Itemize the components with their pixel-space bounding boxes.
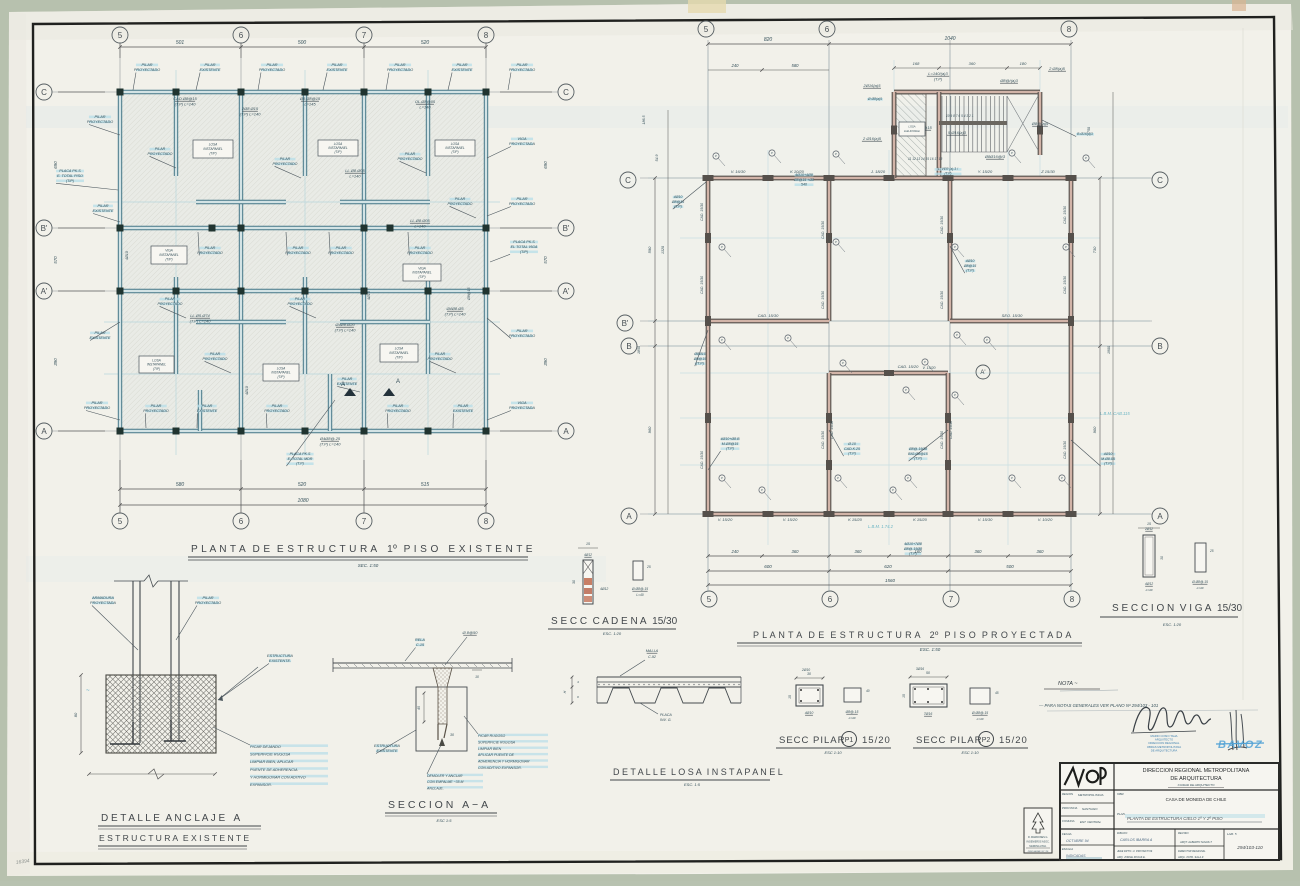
svg-text:APLICAR PUENTE DE: APLICAR PUENTE DE: [477, 753, 515, 757]
svg-text:620: 620: [884, 564, 892, 569]
svg-text:PILAR: PILAR: [455, 197, 466, 201]
svg-text:PROYECTADO: PROYECTADO: [509, 202, 535, 206]
svg-text:ESC. 1:20: ESC. 1:20: [603, 631, 622, 636]
svg-text:PROYECTADO: PROYECTADO: [385, 409, 411, 413]
svg-text:540: 540: [801, 183, 807, 187]
svg-text:INSTAPANEL: INSTAPANEL: [389, 351, 409, 355]
svg-text:PROYECTADO: PROYECTADO: [158, 302, 183, 306]
svg-text:CON ADITIVO EXPANSOR.: CON ADITIVO EXPANSOR.: [478, 766, 522, 770]
svg-text:PROYECTADO: PROYECTADO: [407, 251, 433, 255]
svg-text:690: 690: [53, 161, 58, 169]
svg-text:5: 5: [707, 595, 712, 604]
svg-text:(T.P): (T.P): [726, 447, 734, 451]
svg-text:Ø8@.15: Ø8@.15: [845, 710, 859, 714]
svg-text:15: 15: [902, 694, 906, 698]
svg-text:PROYECTADO: PROYECTADO: [428, 357, 453, 361]
svg-text:PILAR: PILAR: [203, 596, 214, 600]
svg-text:(TIP): (TIP): [66, 179, 75, 183]
svg-text:4Ø12: 4Ø12: [1145, 582, 1153, 586]
svg-text:EXISTENTE: EXISTENTE: [451, 68, 473, 72]
svg-text:PILAR: PILAR: [98, 204, 109, 208]
svg-text:2 Ø8(a)5: 2 Ø8(a)5: [1048, 66, 1066, 71]
svg-text:VIGA: VIGA: [165, 249, 173, 253]
svg-text:DEMOLER Y ANCLAR: DEMOLER Y ANCLAR: [427, 774, 463, 778]
svg-text:E S T R U C T U R A E X I S T: E S T R U C T U R A E X I S T E N T E: [99, 833, 249, 843]
svg-text:1850: 1850: [637, 346, 641, 354]
svg-text:D E T A L L E A N C L A J E: D E T A L L E A N C L A J E A: [101, 813, 240, 824]
svg-text:10: 10: [475, 675, 479, 679]
svg-text:EST. CENTRAL: EST. CENTRAL: [1080, 820, 1102, 824]
svg-text:EXISTENTE: EXISTENTE: [89, 336, 111, 340]
svg-text:501: 501: [176, 40, 185, 46]
svg-text:54.9: 54.9: [655, 155, 659, 162]
svg-text:PROYECTADO: PROYECTADO: [143, 409, 169, 413]
svg-text:L=140: L=140: [419, 105, 431, 110]
svg-text:515: 515: [421, 482, 430, 488]
svg-text:INSTAPANEL: INSTAPANEL: [203, 147, 223, 151]
svg-text:C: C: [1157, 176, 1163, 185]
svg-text:15: 15: [1147, 522, 1151, 526]
svg-text:P: P: [956, 333, 958, 337]
svg-text:L=40: L=40: [977, 717, 984, 721]
svg-text:520: 520: [298, 482, 307, 488]
svg-text:L.B.M. 1.74.2: L.B.M. 1.74.2: [868, 524, 894, 529]
svg-text:PICAR DEJANDO: PICAR DEJANDO: [250, 745, 281, 749]
svg-text:(T.P) L=140: (T.P) L=140: [175, 102, 197, 107]
svg-text:P: P: [907, 476, 909, 480]
svg-text:50: 50: [926, 671, 930, 675]
svg-text:960: 960: [647, 426, 652, 433]
svg-text:PILAR: PILAR: [415, 246, 426, 250]
svg-text:360: 360: [792, 549, 800, 554]
svg-text:PILAR: PILAR: [205, 246, 216, 250]
svg-text:PLANTA DE ESTRUCTURA CIELO 1º: PLANTA DE ESTRUCTURA CIELO 1º Y 2º PISO: [1127, 816, 1223, 821]
svg-text:(T.P): (T.P): [944, 172, 951, 176]
svg-text:PROYECTADO: PROYECTADO: [259, 68, 285, 72]
svg-text:CAD.Ø8@15: CAD.Ø8@15: [173, 96, 197, 101]
svg-text:PROYECTADO: PROYECTADO: [509, 334, 535, 338]
svg-text:P: P: [837, 476, 839, 480]
svg-text:168: 168: [913, 61, 920, 66]
svg-text:OFNO 244-248 V ST. 756: OFNO 244-248 V ST. 756: [1028, 850, 1049, 853]
svg-text:R. MARDONES G.: R. MARDONES G.: [1028, 836, 1048, 839]
svg-text:CAD. 15/30: CAD. 15/30: [1063, 276, 1067, 294]
svg-text:V. 15/20: V. 15/20: [718, 517, 733, 522]
svg-text:LOSA: LOSA: [209, 143, 218, 147]
svg-text:4Ø12: 4Ø12: [600, 587, 608, 591]
svg-text:4Ø10: 4Ø10: [245, 386, 249, 395]
svg-text:(TIP): (TIP): [334, 150, 341, 154]
svg-text:L.B.M. CAB.115: L.B.M. CAB.115: [1100, 411, 1130, 416]
svg-text:PLAN.: PLAN.: [1117, 812, 1126, 816]
svg-text:— PARA NOTAS GENERALES VER PL: — PARA NOTAS GENERALES VER PLANO Nº 294/…: [1038, 703, 1159, 708]
svg-text:PILAR: PILAR: [280, 157, 291, 161]
svg-text:B: B: [626, 342, 631, 351]
svg-text:PROYECTADO: PROYECTADO: [87, 120, 113, 124]
svg-text:PILAR: PILAR: [151, 404, 162, 408]
svg-text:C-15: C-15: [416, 643, 425, 647]
svg-text:8: 8: [484, 517, 489, 526]
svg-text:JEFE DPTO. U. PROYECTOS: JEFE DPTO. U. PROYECTOS: [1117, 849, 1152, 853]
svg-text:15: 15: [586, 542, 590, 546]
svg-text:(TIP): (TIP): [165, 258, 172, 262]
svg-text:ESC 1:10: ESC 1:10: [824, 750, 842, 755]
svg-text:5: 5: [118, 31, 123, 40]
svg-text:PILAR: PILAR: [267, 63, 278, 67]
svg-text:CAD. 15/30: CAD. 15/30: [821, 431, 825, 449]
svg-text:PROYECTADO: PROYECTADO: [398, 157, 423, 161]
svg-text:Ø Ø8(a)5: Ø Ø8(a)5: [867, 97, 882, 101]
svg-text:ESCALA: ESCALA: [1062, 847, 1073, 851]
svg-text:DIRECCION REGIONAL METROPOLI: DIRECCION REGIONAL METROPOLITANA: [1143, 768, 1250, 774]
svg-text:L=140: L=140: [349, 174, 361, 179]
svg-text:CAD. 15/30: CAD. 15/30: [821, 221, 825, 239]
svg-text:REVISO: REVISO: [1178, 831, 1189, 835]
svg-text:1560: 1560: [885, 578, 896, 583]
svg-text:PROYECTADA: PROYECTADA: [90, 601, 116, 605]
svg-text:Ø4Ø8@.25: Ø4Ø8@.25: [319, 436, 341, 441]
svg-text:P L A N T A D E E S T R U C: P L A N T A D E E S T R U C T U R A 2º P…: [753, 630, 1072, 640]
svg-text:820: 820: [764, 37, 773, 43]
svg-text:6: 6: [828, 595, 833, 604]
svg-text:1040: 1040: [944, 36, 955, 42]
svg-text:P: P: [715, 154, 717, 158]
svg-text:K 15/20: K 15/20: [848, 517, 863, 522]
svg-text:PILAR: PILAR: [272, 404, 283, 408]
svg-text:P: P: [1085, 156, 1087, 160]
svg-text:PILAR: PILAR: [517, 63, 528, 67]
svg-text:(T.P): (T.P): [296, 462, 304, 466]
svg-text:EXPANSOR.: EXPANSOR.: [250, 783, 272, 787]
svg-text:EXISTENTE: EXISTENTE: [199, 68, 221, 72]
svg-text:PROYECTADO: PROYECTADO: [203, 357, 228, 361]
svg-text:CAD. 15/30: CAD. 15/30: [1063, 441, 1067, 459]
svg-text:PILAR: PILAR: [342, 377, 353, 381]
svg-text:25: 25: [1209, 549, 1214, 553]
svg-text:PLACA: PLACA: [660, 713, 672, 717]
svg-text:MARDSA LTDA.: MARDSA LTDA.: [1029, 845, 1047, 848]
svg-text:V. 15/20: V. 15/20: [783, 517, 798, 522]
svg-text:6: 6: [825, 25, 830, 34]
svg-text:EXISTENTE: EXISTENTE: [326, 68, 348, 72]
svg-text:PROYECTADO: PROYECTADO: [285, 251, 311, 255]
svg-text:METROPOLITANA: METROPOLITANA: [1078, 793, 1103, 797]
svg-text:Ø4Ø8.Ø5: Ø4Ø8.Ø5: [445, 306, 464, 311]
svg-text:Y HORMIGONAR CON ADITIVO: Y HORMIGONAR CON ADITIVO: [250, 775, 306, 779]
svg-text:DIBUJO: DIBUJO: [1117, 831, 1128, 835]
svg-text:C: C: [625, 176, 631, 185]
svg-text:PROYECTADO: PROYECTADO: [387, 68, 413, 72]
svg-text:6: 6: [239, 31, 244, 40]
svg-text:RELA: RELA: [415, 638, 425, 642]
svg-text:SANTIAGO: SANTIAGO: [1082, 807, 1098, 811]
svg-text:730: 730: [1092, 246, 1097, 253]
svg-text:CAD. 15/30: CAD. 15/30: [1063, 206, 1067, 224]
svg-text:7: 7: [362, 31, 367, 40]
svg-text:COMUNA: COMUNA: [1062, 819, 1075, 823]
svg-text:500: 500: [298, 40, 307, 46]
svg-text:P: P: [721, 476, 723, 480]
svg-text:P: P: [787, 336, 789, 340]
svg-text:P1: P1: [845, 737, 854, 744]
svg-text:CASA DE MONEDA DE CHILE: CASA DE MONEDA DE CHILE: [1166, 797, 1227, 802]
svg-text:B': B': [622, 319, 629, 328]
svg-text:CAD. 15/30: CAD. 15/30: [821, 291, 825, 309]
svg-text:900: 900: [1092, 426, 1097, 433]
svg-text:Ø.10: Ø.10: [847, 442, 856, 446]
svg-text:570: 570: [53, 256, 58, 264]
svg-text:600: 600: [764, 564, 772, 569]
svg-text:P: P: [761, 488, 763, 492]
svg-text:INV. G.: INV. G.: [660, 718, 672, 722]
svg-text:ARMADURA: ARMADURA: [91, 596, 114, 600]
svg-text:500: 500: [1006, 564, 1014, 569]
svg-text:EXISTENTE: EXISTENTE: [337, 382, 358, 386]
svg-text:CAD.K.25: CAD.K.25: [844, 447, 860, 451]
svg-text:690: 690: [543, 161, 548, 169]
svg-text:30: 30: [572, 580, 576, 584]
svg-text:L=140: L=140: [414, 224, 426, 229]
svg-text:VIGA: VIGA: [517, 401, 527, 405]
svg-text:5 Ø16(a)3: 5 Ø16(a)3: [948, 130, 967, 135]
svg-text:ESTRUCTURA: ESTRUCTURA: [267, 654, 293, 658]
svg-text:Ø8@15: Ø8@15: [671, 200, 684, 204]
svg-text:11 12 13 14 15 16 17 18: 11 12 13 14 15 16 17 18: [908, 157, 943, 161]
svg-text:(TIP): (TIP): [520, 250, 529, 254]
svg-text:INSTAPANEL: INSTAPANEL: [159, 253, 179, 257]
svg-text:SECC PILAR: SECC PILAR: [916, 735, 983, 746]
svg-text:CARLOS IBARRA A: CARLOS IBARRA A: [1120, 838, 1153, 842]
svg-text:4Ø10: 4Ø10: [1104, 452, 1113, 456]
svg-text:240: 240: [731, 63, 740, 68]
svg-text:CAD. 15/20: CAD. 15/20: [898, 364, 919, 369]
svg-text:Ø8.Ø8@15: Ø8.Ø8@15: [299, 96, 321, 101]
svg-text:EXISTENTE: EXISTENTE: [92, 209, 114, 213]
svg-text:P: P: [954, 393, 956, 397]
svg-text:PLACA PK.S: PLACA PK.S: [513, 240, 535, 244]
svg-text:A': A': [563, 287, 570, 296]
svg-text:5: 5: [118, 517, 123, 526]
svg-text:ARQT. ALBERTO NAVAS T.: ARQT. ALBERTO NAVAS T.: [1179, 840, 1213, 844]
svg-text:4Ø10: 4Ø10: [805, 711, 814, 715]
svg-text:CON EMPALME −35 M: CON EMPALME −35 M: [427, 780, 463, 784]
svg-text:V. 16/30: V. 16/30: [731, 169, 746, 174]
svg-text:L=145: L=145: [304, 102, 316, 107]
svg-text:8: 8: [1070, 595, 1075, 604]
svg-text:DIRECTOR REGIONAL: DIRECTOR REGIONAL: [1178, 849, 1206, 853]
svg-text:PROYECTADO: PROYECTADO: [288, 302, 313, 306]
svg-text:B': B': [41, 224, 48, 233]
svg-text:PROYECTADA: PROYECTADA: [509, 142, 535, 146]
svg-text:~: ~: [86, 688, 90, 694]
svg-text:2Ø8 Ø15: 2Ø8 Ø15: [241, 106, 259, 111]
svg-text:P: P: [842, 361, 844, 365]
svg-text:EXISTENTE: EXISTENTE: [197, 409, 218, 413]
svg-text:360: 360: [855, 549, 863, 554]
svg-text:ESC. 1:5: ESC. 1:5: [684, 782, 701, 787]
svg-text:8: 8: [484, 31, 489, 40]
svg-text:Ø8@15: Ø8@15: [467, 288, 471, 301]
svg-text:Ø8@/(a)3: Ø8@/(a)3: [999, 78, 1018, 83]
svg-text:ARQL. PATR. SALA Z.: ARQL. PATR. SALA Z.: [1177, 855, 1204, 859]
svg-text:Ø.Ø8@.15: Ø.Ø8@.15: [971, 711, 988, 715]
svg-text:P: P: [892, 488, 894, 492]
svg-text:L. VER (a).3 /: L. VER (a).3 /: [938, 167, 959, 171]
svg-text:2Ø10: 2Ø10: [801, 668, 810, 672]
svg-text:4Ø10+7Ø8: 4Ø10+7Ø8: [904, 542, 922, 546]
svg-text:750: 750: [1087, 127, 1091, 133]
svg-text:L=40: L=40: [1197, 586, 1204, 590]
svg-text:Ø8@15: Ø8@15: [963, 264, 976, 268]
svg-text:D E T A L L E L O S A I N S: D E T A L L E L O S A I N S T A P A N E …: [613, 767, 783, 777]
svg-text:P: P: [1065, 245, 1067, 249]
svg-text:160: 160: [915, 549, 923, 554]
svg-text:PILAR: PILAR: [458, 404, 469, 408]
svg-text:PILAR: PILAR: [165, 297, 176, 301]
svg-text:OL.Ø8@05: OL.Ø8@05: [415, 99, 436, 104]
svg-text:PILAR: PILAR: [393, 404, 404, 408]
svg-text:Ø.8@50: Ø.8@50: [462, 630, 479, 635]
svg-text:S E C C C A D E N A 15/30: S E C C C A D E N A 15/30: [551, 616, 678, 627]
svg-text:P: P: [1011, 151, 1013, 155]
svg-text:7: 7: [362, 517, 367, 526]
svg-text:P: P: [924, 360, 926, 364]
svg-text:45: 45: [417, 706, 421, 710]
svg-text:80: 80: [73, 712, 78, 717]
svg-text:180: 180: [1020, 61, 1027, 66]
svg-text:VIGA: VIGA: [517, 137, 527, 141]
svg-text:PILAR: PILAR: [210, 352, 221, 356]
svg-text:4Ø10+4Ø8: 4Ø10+4Ø8: [795, 173, 813, 177]
svg-text:PROYECTADO: PROYECTADO: [448, 202, 473, 206]
svg-text:SECC PILAR: SECC PILAR: [779, 735, 846, 746]
svg-text:H.ELICOIDAL: H.ELICOIDAL: [904, 129, 921, 133]
svg-text:E. TOTAL PISO: E. TOTAL PISO: [57, 174, 83, 178]
svg-text:LAM. 5: LAM. 5: [1227, 832, 1237, 836]
svg-text:(T.P): (T.P): [1104, 462, 1112, 466]
svg-text:INDICADAS: INDICADAS: [1066, 854, 1086, 858]
svg-text:PILAR: PILAR: [295, 297, 306, 301]
svg-text:CAD. 15/30: CAD. 15/30: [949, 421, 953, 439]
svg-text:7: 7: [949, 595, 954, 604]
svg-text:PROYECTADO: PROYECTADO: [509, 68, 535, 72]
svg-text:(TIP): (TIP): [209, 152, 216, 156]
svg-text:PILAR: PILAR: [155, 147, 166, 151]
svg-text:15: 15: [788, 695, 792, 699]
svg-text:1320: 1320: [661, 246, 665, 254]
svg-text:L=40: L=40: [1146, 588, 1153, 592]
svg-text:BAVOZ: BAVOZ: [1218, 739, 1263, 751]
svg-text:PILAR: PILAR: [435, 352, 446, 356]
svg-text:4Ø10+Ø8.B: 4Ø10+Ø8.B: [720, 437, 740, 441]
svg-text:(TIP): (TIP): [395, 356, 402, 360]
svg-text:ADHERENCIA Y HORMIGONAR: ADHERENCIA Y HORMIGONAR: [477, 760, 530, 764]
svg-text:ESC. 1:20: ESC. 1:20: [1163, 622, 1182, 627]
svg-text:PILAR: PILAR: [336, 246, 347, 250]
svg-text:ESC. 1:50: ESC. 1:50: [920, 647, 941, 652]
svg-text:2Ø12: 2Ø12: [1144, 527, 1153, 531]
svg-text:CAD. 15/30: CAD. 15/30: [758, 313, 779, 318]
svg-text:P2: P2: [982, 737, 991, 744]
svg-text:PROYECTADA: PROYECTADA: [509, 406, 535, 410]
svg-text:SUPERFICIE RUGOSA: SUPERFICIE RUGOSA: [478, 740, 516, 744]
svg-text:LOSA: LOSA: [395, 347, 404, 351]
svg-text:PROYECTADO: PROYECTADO: [148, 152, 173, 156]
svg-text:CAD. 15/30: CAD. 15/30: [830, 421, 834, 439]
svg-text:CAD. 15/30: CAD. 15/30: [700, 276, 704, 294]
svg-text:(TIP): (TIP): [418, 275, 425, 279]
svg-text:1900: 1900: [1107, 346, 1111, 354]
svg-text:B': B': [563, 224, 570, 233]
svg-text:A: A: [563, 427, 569, 436]
svg-text:P: P: [986, 338, 988, 342]
svg-text:SEC. 1:50: SEC. 1:50: [358, 563, 379, 568]
svg-text:PROYECTADO: PROYECTADO: [273, 162, 298, 166]
svg-text:Ø.Ø8@.15: Ø.Ø8@.15: [1191, 580, 1208, 584]
svg-text:LL.Ø8.Ø05: LL.Ø8.Ø05: [345, 168, 365, 173]
svg-text:EXISTENTE.: EXISTENTE.: [269, 659, 291, 663]
svg-text:CAD. 15/30: CAD. 15/30: [940, 216, 944, 234]
svg-text:Ø8Ø16@/3: Ø8Ø16@/3: [984, 154, 1006, 159]
svg-text:DE ARQUITECTURA: DE ARQUITECTURA: [1151, 748, 1178, 752]
svg-text:PILAR: PILAR: [517, 329, 528, 333]
svg-text:C: C: [41, 88, 47, 97]
svg-text:P: P: [1061, 476, 1063, 480]
svg-text:H: H: [563, 690, 567, 693]
svg-text:PLACA PK.S: PLACA PK.S: [59, 169, 81, 173]
svg-text:2Ø16(a)5: 2Ø16(a)5: [863, 83, 882, 88]
svg-text:45: 45: [995, 691, 999, 695]
svg-text:CIUDAD DE ARQUITECTO: CIUDAD DE ARQUITECTO: [1178, 783, 1216, 787]
svg-text:ESC 1:5: ESC 1:5: [437, 818, 453, 823]
svg-text:8: 8: [1067, 25, 1072, 34]
svg-text:(T.P) L=140: (T.P) L=140: [335, 328, 357, 333]
svg-text:OCTUBRE 94: OCTUBRE 94: [1066, 839, 1089, 843]
svg-text:P: P: [954, 245, 956, 249]
svg-text:LL.Ø8.Ø05: LL.Ø8.Ø05: [410, 218, 430, 223]
svg-text:ANCLAJE.: ANCLAJE.: [426, 786, 444, 790]
svg-text:(T.P) L=140: (T.P) L=140: [190, 319, 212, 324]
svg-text:Ø.Ø8@.15: Ø.Ø8@.15: [631, 587, 648, 591]
svg-text:A': A': [41, 287, 48, 296]
svg-text:ESTRUCTURA: ESTRUCTURA: [374, 744, 400, 748]
svg-text:SUPERFICIE RUGOSA: SUPERFICIE RUGOSA: [250, 753, 291, 757]
svg-text:PILAR: PILAR: [293, 246, 304, 250]
svg-text:186.5: 186.5: [642, 116, 646, 125]
svg-text:LIMPIAR BIEN, APLICAR: LIMPIAR BIEN, APLICAR: [250, 760, 294, 764]
svg-text:294/103-110: 294/103-110: [1236, 845, 1263, 850]
svg-text:580: 580: [792, 63, 800, 68]
svg-text:PROYECTADO: PROYECTADO: [195, 601, 221, 605]
svg-text:4Ø12: 4Ø12: [584, 553, 592, 557]
svg-text:M.Ø8@15: M.Ø8@15: [722, 442, 738, 446]
svg-text:PLACA PK.S: PLACA PK.S: [290, 452, 311, 456]
svg-text:P: P: [1011, 476, 1013, 480]
svg-text:4Ø10: 4Ø10: [966, 259, 975, 263]
svg-text:L=40: L=40: [849, 716, 856, 720]
svg-text:A: A: [41, 427, 47, 436]
svg-text:PROYECTADO: PROYECTADO: [328, 251, 354, 255]
svg-text:360: 360: [975, 549, 983, 554]
svg-text:6: 6: [239, 517, 244, 526]
svg-text:PICAR RUGOSO: PICAR RUGOSO: [478, 734, 506, 738]
svg-text:FECHA: FECHA: [1062, 832, 1072, 836]
svg-text:A: A: [626, 512, 632, 521]
svg-text:4Ø10: 4Ø10: [125, 251, 129, 260]
svg-text:V. 15/20: V. 15/20: [922, 366, 935, 370]
svg-text:25: 25: [646, 565, 651, 569]
svg-text:240: 240: [731, 549, 740, 554]
